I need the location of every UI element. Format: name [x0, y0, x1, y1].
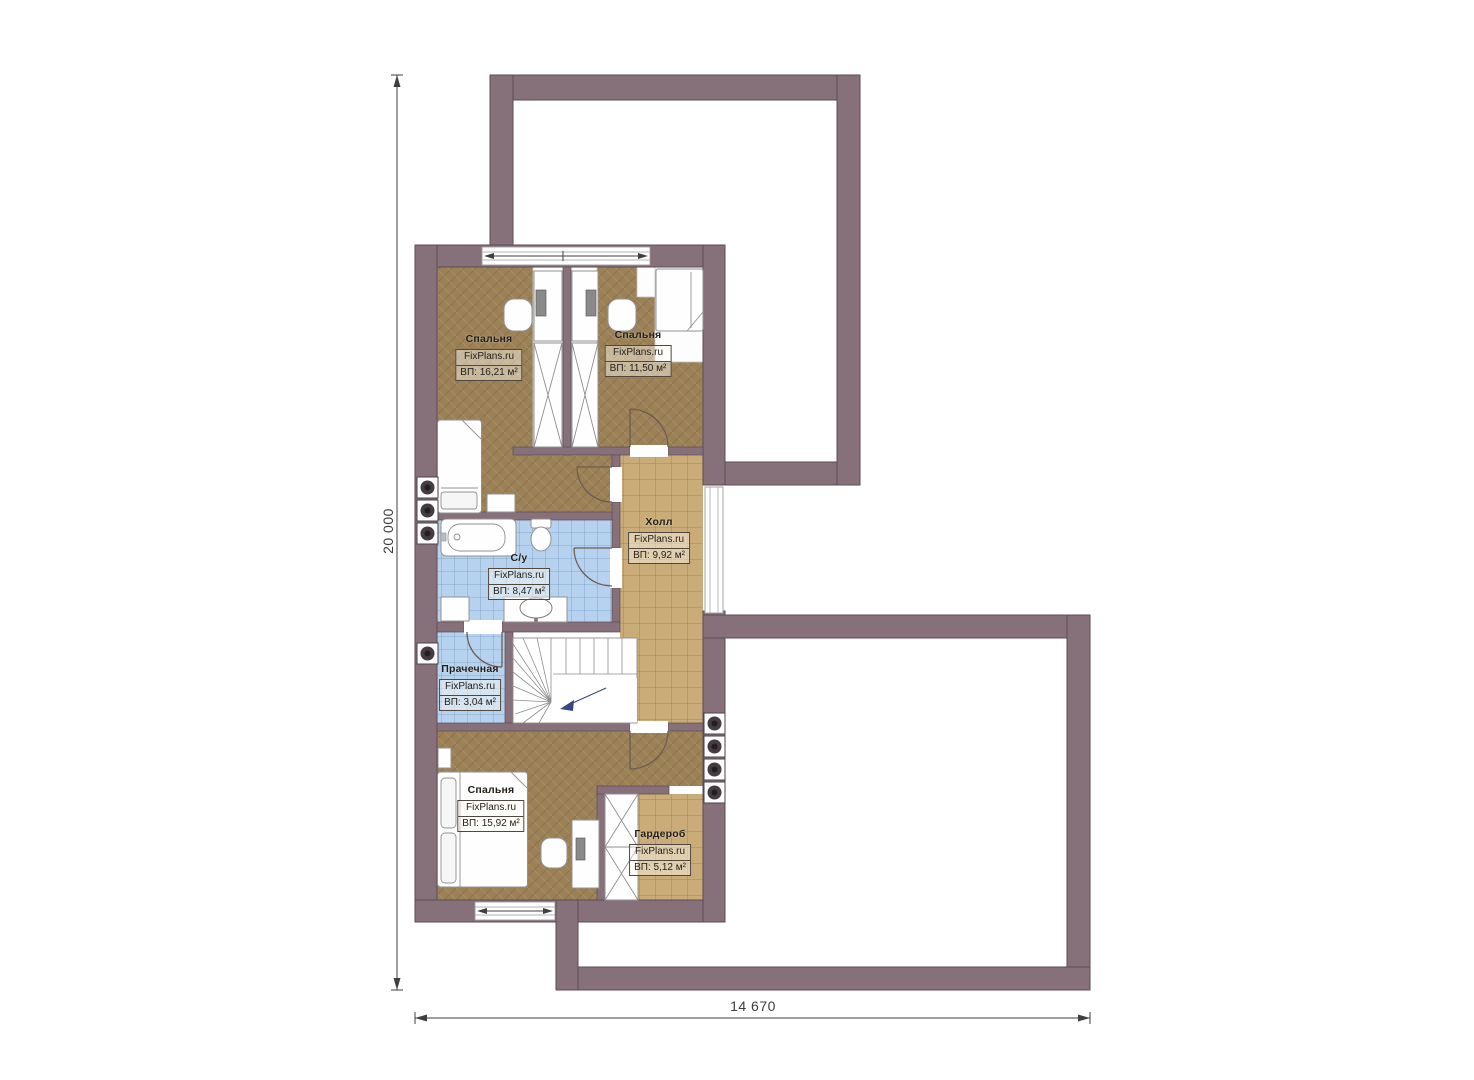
wall-bedroom-bottom-north	[437, 723, 630, 731]
wall-hall-west	[612, 588, 620, 622]
room-label-laundry: Прачечная FixPlans.ru ВП: 3,04 м²	[439, 663, 501, 711]
wall	[556, 900, 578, 990]
window-right	[705, 487, 723, 613]
wall	[703, 615, 1090, 638]
room-name: Холл	[628, 516, 690, 529]
wall	[703, 245, 725, 485]
room-info-box: FixPlans.ru ВП: 9,92 м²	[628, 532, 690, 564]
floor-plan-drawing	[0, 0, 1474, 1080]
window-bottom	[475, 902, 555, 920]
room-area: ВП: 5,12 м²	[630, 861, 690, 876]
wardrobe-cabinet-right	[572, 343, 598, 447]
room-name: Спальня	[455, 333, 522, 346]
wall	[556, 967, 1090, 990]
desk-bottom	[572, 820, 599, 888]
wardrobe-cabinet-left	[534, 343, 562, 447]
staircase	[513, 638, 637, 723]
room-name: Спальня	[605, 329, 672, 342]
room-label-hall: Холл FixPlans.ru ВП: 9,92 м²	[628, 516, 690, 564]
room-label-bedroom-bottom: Спальня FixPlans.ru ВП: 15,92 м²	[457, 784, 524, 832]
room-area: ВП: 16,21 м²	[456, 366, 521, 381]
wall	[490, 75, 860, 100]
alcove-notch	[637, 267, 655, 297]
wall-bedroom-bottom-north	[668, 723, 703, 731]
wall-bathroom-laundry	[437, 622, 464, 632]
brand-watermark: FixPlans.ru	[606, 346, 671, 362]
room-info-box: FixPlans.ru ВП: 8,47 м²	[488, 568, 550, 600]
room-name: С/у	[488, 552, 550, 565]
wall-between-bedrooms	[563, 267, 571, 455]
room-name: Прачечная	[439, 663, 501, 676]
bathtub	[441, 519, 516, 556]
brand-watermark: FixPlans.ru	[489, 569, 549, 585]
wall-wardrobe-north	[597, 786, 669, 794]
wall-hall-west	[612, 455, 620, 467]
room-name: Спальня	[457, 784, 524, 797]
wall	[837, 75, 860, 485]
wall-laundry-stairs	[505, 632, 513, 723]
room-label-bedroom-top-right: Спальня FixPlans.ru ВП: 11,50 м²	[605, 329, 672, 377]
window-top	[482, 247, 650, 265]
room-info-box: FixPlans.ru ВП: 11,50 м²	[605, 345, 672, 377]
sink-counter	[504, 597, 567, 622]
wall-below-closets	[513, 447, 630, 455]
desk-chair-bottom	[541, 838, 567, 868]
bed-single-left	[438, 420, 482, 513]
wall-hall-west	[612, 502, 620, 548]
nightstand	[438, 748, 451, 768]
desk-chair-left	[504, 299, 532, 331]
room-area: ВП: 15,92 м²	[458, 817, 523, 832]
floor-plan-canvas: Спальня FixPlans.ru ВП: 16,21 м² Спальня…	[0, 0, 1474, 1080]
stair-void	[557, 678, 637, 722]
toilet	[531, 519, 551, 551]
desk-chair-right	[608, 299, 636, 331]
wall	[415, 245, 437, 922]
room-area: ВП: 8,47 м²	[489, 585, 549, 600]
dresser	[487, 494, 515, 512]
desk-left	[534, 271, 562, 341]
room-area: ВП: 11,50 м²	[606, 362, 671, 377]
wall	[714, 462, 837, 485]
room-info-box: FixPlans.ru ВП: 15,92 м²	[457, 800, 524, 832]
room-name: Гардероб	[629, 828, 691, 841]
wall	[1067, 615, 1090, 990]
brand-watermark: FixPlans.ru	[458, 801, 523, 817]
brand-watermark: FixPlans.ru	[440, 680, 500, 696]
room-info-box: FixPlans.ru ВП: 3,04 м²	[439, 679, 501, 711]
brand-watermark: FixPlans.ru	[629, 533, 689, 549]
wall-bathroom-stairs	[502, 622, 620, 632]
room-info-box: FixPlans.ru ВП: 5,12 м²	[629, 844, 691, 876]
room-label-wardrobe: Гардероб FixPlans.ru ВП: 5,12 м²	[629, 828, 691, 876]
dimension-label-left: 20 000	[380, 508, 396, 554]
room-area: ВП: 3,04 м²	[440, 696, 500, 711]
room-info-box: FixPlans.ru ВП: 16,21 м²	[455, 349, 522, 381]
brand-watermark: FixPlans.ru	[630, 845, 690, 861]
room-label-bathroom: С/у FixPlans.ru ВП: 8,47 м²	[488, 552, 550, 600]
wall	[490, 75, 513, 247]
room-label-bedroom-top-left: Спальня FixPlans.ru ВП: 16,21 м²	[455, 333, 522, 381]
wall-below-closets	[668, 447, 703, 455]
desk-right	[572, 271, 598, 341]
dimension-label-bottom: 14 670	[730, 998, 776, 1014]
washing-machine	[441, 597, 469, 621]
brand-watermark: FixPlans.ru	[456, 350, 521, 366]
room-area: ВП: 9,92 м²	[629, 549, 689, 564]
bed-single-right	[656, 269, 703, 331]
